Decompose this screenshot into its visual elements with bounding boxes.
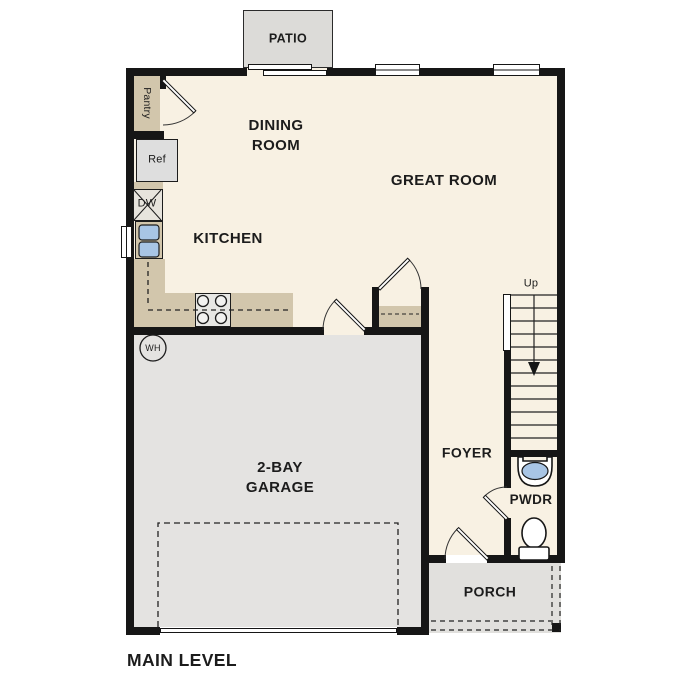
dishwasher-label: DW xyxy=(138,197,157,212)
stairs xyxy=(511,295,557,438)
refrigerator-label: Ref xyxy=(148,153,166,168)
patio-label: PATIO xyxy=(269,31,307,48)
plan-linework xyxy=(0,0,687,687)
door-front-entry xyxy=(445,528,489,561)
pwdr-label: PWDR xyxy=(510,491,553,509)
foyer-label: FOYER xyxy=(442,444,492,463)
door-garage-entry xyxy=(323,299,366,331)
plan-title: MAIN LEVEL xyxy=(127,650,237,671)
stairs-up-label: Up xyxy=(524,277,538,292)
floor-plan-main-level: PATIO DINING ROOM GREAT ROOM KITCHEN 2-B… xyxy=(0,0,687,687)
great-room-label: GREAT ROOM xyxy=(391,171,497,191)
pwdr-sink xyxy=(518,457,552,486)
door-powder-room xyxy=(483,487,508,520)
kitchen-label: KITCHEN xyxy=(193,229,262,249)
door-closet xyxy=(378,258,421,290)
water-heater-label: WH xyxy=(145,342,160,354)
toilet xyxy=(519,518,549,560)
porch-label: PORCH xyxy=(464,583,517,602)
dining-room-label: DINING ROOM xyxy=(249,116,304,157)
garage-label: 2-BAY GARAGE xyxy=(246,458,314,499)
kitchen-sink xyxy=(139,225,159,257)
door-pantry xyxy=(162,79,196,125)
pantry-label: Pantry xyxy=(140,87,154,119)
stairs-direction-arrow xyxy=(528,362,540,376)
window-mullions xyxy=(127,70,540,257)
